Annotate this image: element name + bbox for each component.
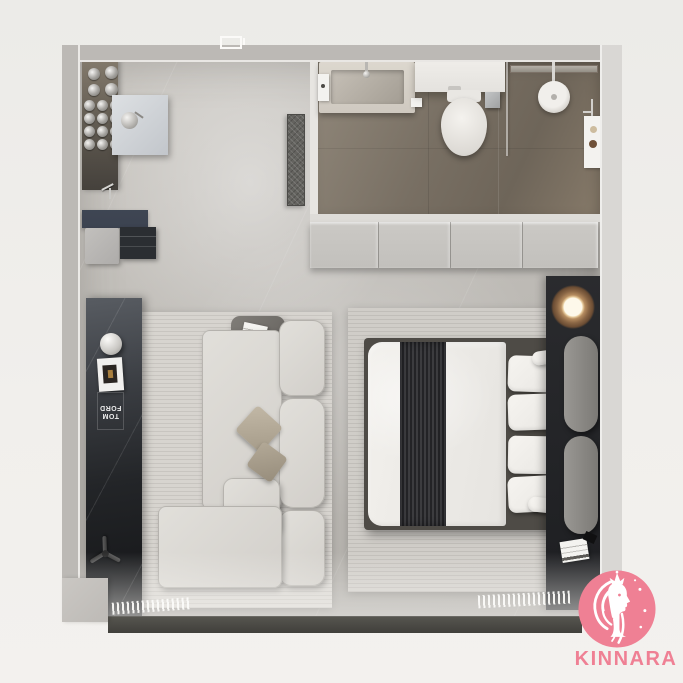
wardrobe-door [378,222,451,268]
toiletry-jar [589,140,597,148]
glass [97,126,108,137]
wardrobe-door [310,222,379,268]
dining-table [112,95,168,155]
kitchen-cabinet [82,210,148,228]
sofa-back-cushion [279,510,325,586]
apartment-floor-plan-render: TOM FORD [0,0,683,683]
book-title-line2: FORD [98,403,123,411]
entry-door-tick [243,38,245,45]
sofa-back-cushion [279,398,325,508]
toiletry-jar [590,126,597,133]
headboard-bolster [564,336,598,432]
tom-ford-book: TOM FORD [97,392,124,430]
bottle [88,84,100,96]
bathroom-south-wall [310,214,600,222]
sofa-seat [158,506,282,588]
bathroom-left-wall [310,60,318,215]
top-wall [62,45,620,62]
bedside-magazine [560,538,590,563]
glass [84,100,95,111]
toilet-paper-holder [411,98,422,107]
control-dot [321,84,325,88]
glass [84,113,95,124]
bed-throw-blanket [400,342,446,526]
entry-door-marker [220,36,242,49]
glass [97,139,108,150]
kettle [121,112,138,129]
shower-head-center [551,94,557,100]
book-title-line1: TOM [98,411,123,419]
wardrobe-door [522,222,598,268]
glass [84,126,95,137]
bath-faucet-knob [363,71,370,78]
left-wall [62,45,80,620]
stool [85,228,119,264]
wardrobe-door [450,222,523,268]
perfume-box [97,357,124,392]
bin [485,92,500,108]
towel-rail-arm [583,111,593,113]
brand-logo [576,568,658,650]
radiator [287,114,305,206]
kinnara-figure-icon [576,568,658,650]
sofa-back-cushion [279,320,325,396]
brand-name: KINNARA [566,648,683,672]
wardrobe [310,222,598,268]
glass [84,139,95,150]
side-table [120,227,156,259]
headboard-bolster [564,436,598,534]
ring-pendant-lamp [550,284,596,330]
right-wall [600,45,622,632]
bottle [88,68,100,80]
faucet-base [109,188,111,199]
window-ledge [108,616,582,633]
shower-glass-partition [506,60,508,156]
bottom-left-wall-block [62,578,108,622]
bottle [105,66,118,79]
glass [97,113,108,124]
perfume-bottle [108,370,114,378]
glass [97,100,108,111]
decor-vase [100,333,122,355]
